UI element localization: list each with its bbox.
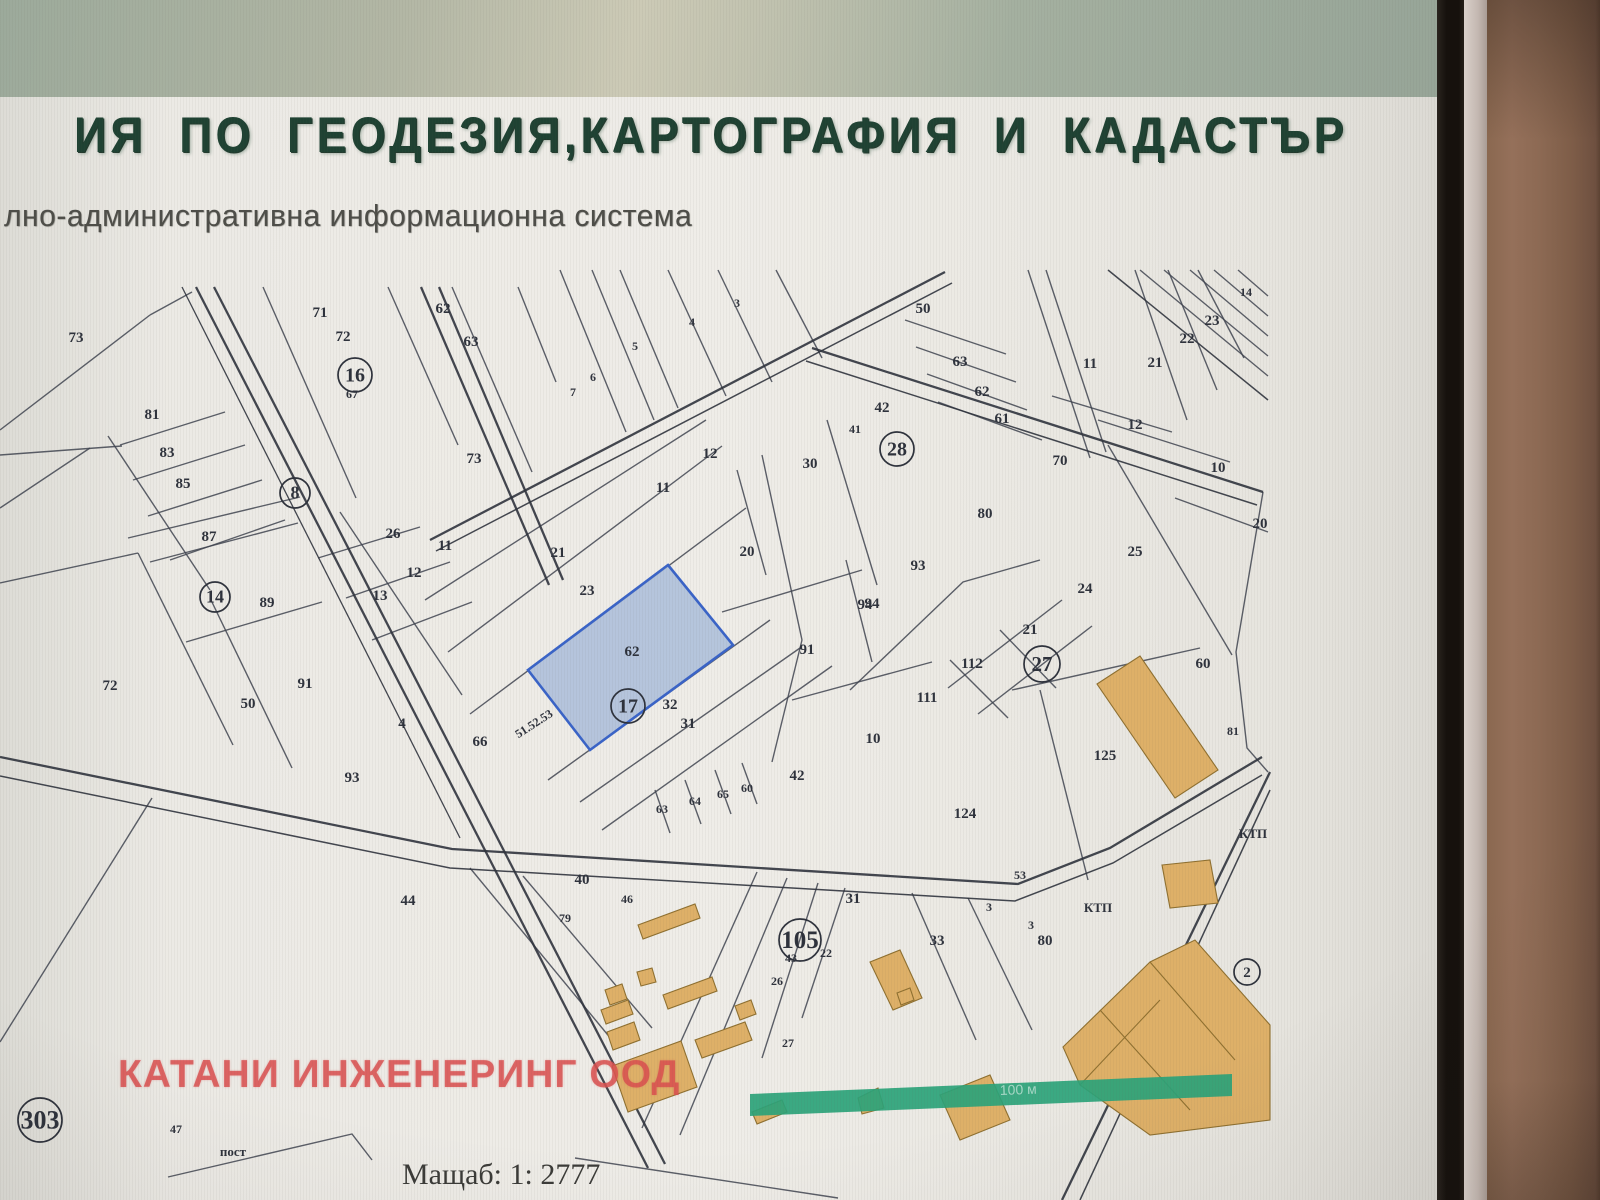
parcel-label: 65 [717, 787, 729, 801]
parcel-label: 32 [663, 697, 678, 713]
parcel-label: 4 [398, 716, 406, 732]
parcel-label: 30 [803, 456, 818, 472]
parcel-label: 53 [1014, 868, 1026, 882]
parcel-label: 72 [336, 329, 351, 345]
parcel-label: 22 [1180, 331, 1195, 347]
parcel-label: 21 [1023, 622, 1038, 638]
parcel-label: 44 [401, 893, 417, 909]
parcel-label: 3 [986, 900, 992, 914]
parcel-label: 89 [260, 595, 275, 611]
parcel-label: 7 [570, 385, 576, 399]
monitor-frame-brown [1487, 0, 1600, 1200]
parcel-label: 62 [975, 384, 990, 400]
parcel-label: 25 [1128, 544, 1143, 560]
parcel-label: 3 [734, 296, 740, 310]
parcel-label: 81 [1227, 724, 1239, 738]
circled-parcel-label: 105 [781, 927, 819, 954]
parcel-label: 42 [875, 400, 890, 416]
parcel-label: 71 [313, 305, 328, 321]
parcel-label: 63 [656, 802, 668, 816]
parcel-label: 66 [473, 734, 489, 750]
parcel-label: 21 [551, 545, 566, 561]
parcel-label: 64 [689, 794, 701, 808]
parcel-label: 125 [1094, 748, 1117, 764]
parcel-label: 112 [961, 656, 983, 672]
parcel-label: 46 [621, 892, 633, 906]
parcel-label: 93 [911, 558, 926, 574]
parcel-label: 14 [1240, 285, 1252, 299]
parcel-label: 21 [1148, 355, 1163, 371]
parcel-label: 20 [740, 544, 755, 560]
parcel-label: 12 [703, 446, 718, 462]
circled-parcel-label: 28 [887, 438, 907, 460]
buildings-layer [601, 656, 1270, 1140]
parcel-label: 73 [69, 330, 84, 346]
parcel-label: 94 [858, 597, 874, 613]
map-scale-text: Мащаб: 1: 2777 [402, 1158, 600, 1192]
parcel-label: 13 [373, 588, 388, 604]
parcel-label: 83 [160, 445, 175, 461]
cadastral-map[interactable]: 7371726762638183858789261112137250919346… [0, 0, 1437, 1200]
parcel-label: 26 [771, 974, 783, 988]
parcel-label: 10 [1211, 460, 1226, 476]
circled-parcel-label: 8 [291, 483, 300, 503]
parcel-label: 11 [438, 538, 452, 554]
parcel-label: 12 [407, 565, 422, 581]
monitor-bezel-inner-edge [1464, 0, 1487, 1200]
circled-parcel-label: 14 [206, 587, 224, 607]
watermark: КАТАНИ ИНЖЕНЕРИНГ ООД [118, 1053, 680, 1097]
parcel-label: 61 [995, 411, 1010, 427]
parcel-label: 85 [176, 476, 191, 492]
parcel-label: 31 [681, 716, 696, 732]
parcel-label: 47 [170, 1122, 182, 1136]
parcel-label: 60 [741, 781, 753, 795]
parcel-label: 10 [866, 731, 881, 747]
parcel-label: 81 [145, 407, 160, 423]
parcel-label: 5 [632, 339, 638, 353]
photo-of-monitor: ИЯ ПО ГЕОДЕЗИЯ,КАРТОГРАФИЯ И КАДАСТЪР лн… [0, 0, 1600, 1200]
parcel-label: 73 [467, 451, 482, 467]
parcel-label: 41 [849, 422, 861, 436]
parcel-label: 20 [1253, 516, 1268, 532]
monitor-bezel-black [1437, 0, 1464, 1200]
monitor-screen: ИЯ ПО ГЕОДЕЗИЯ,КАРТОГРАФИЯ И КАДАСТЪР лн… [0, 0, 1437, 1200]
circled-parcel-label: 16 [345, 364, 365, 386]
parcel-label: 63 [464, 334, 479, 350]
parcel-label: 70 [1053, 453, 1068, 469]
map-annotation-text: пост [220, 1144, 247, 1159]
parcel-label: 124 [954, 806, 977, 822]
parcel-label: 23 [1205, 313, 1220, 329]
map-annotation-text: КТП [1084, 900, 1112, 915]
parcel-label: 33 [930, 933, 945, 949]
parcel-label: 31 [846, 891, 861, 907]
scale-bar-label: 100 м [1000, 1081, 1037, 1098]
parcel-label: 24 [1078, 581, 1094, 597]
parcel-label: 40 [575, 872, 590, 888]
parcel-label: 50 [241, 696, 256, 712]
parcel-label: 62 [436, 301, 451, 317]
parcel-label: 6 [590, 370, 596, 384]
parcel-label: 72 [103, 678, 118, 694]
map-annotation-text: КТП [1239, 826, 1267, 841]
circled-parcel-label: 303 [21, 1105, 60, 1134]
parcel-label: 111 [917, 690, 938, 706]
parcel-label: 87 [202, 529, 218, 545]
parcel-label: 4 [689, 315, 695, 329]
parcel-label: 42 [790, 768, 805, 784]
parcel-label: 79 [559, 911, 571, 925]
parcel-label: 22 [820, 946, 832, 960]
labels-layer: 7371726762638183858789261112137250919346… [18, 285, 1268, 1159]
circled-parcel-label: 2 [1243, 965, 1251, 981]
parcel-label: 50 [916, 301, 931, 317]
parcel-label: 11 [656, 480, 670, 496]
parcel-label: 80 [1038, 933, 1053, 949]
parcel-label: 80 [978, 506, 993, 522]
parcel-label: 11 [1083, 356, 1097, 372]
circled-parcel-label: 17 [618, 695, 638, 717]
parcel-label: 62 [625, 644, 640, 660]
parcel-label: 12 [1128, 417, 1143, 433]
parcel-label: 67 [346, 387, 358, 401]
parcel-label: 91 [298, 676, 313, 692]
parcel-label: 27 [782, 1036, 794, 1050]
parcel-label: 51.52.53 [512, 706, 555, 741]
parcel-label: 63 [953, 354, 968, 370]
parcel-label: 3 [1028, 918, 1034, 932]
parcel-label: 93 [345, 770, 360, 786]
circled-parcel-label: 27 [1032, 652, 1053, 676]
parcel-label: 23 [580, 583, 595, 599]
parcel-label: 26 [386, 526, 402, 542]
parcel-label: 91 [800, 642, 815, 658]
parcel-label: 60 [1196, 656, 1211, 672]
